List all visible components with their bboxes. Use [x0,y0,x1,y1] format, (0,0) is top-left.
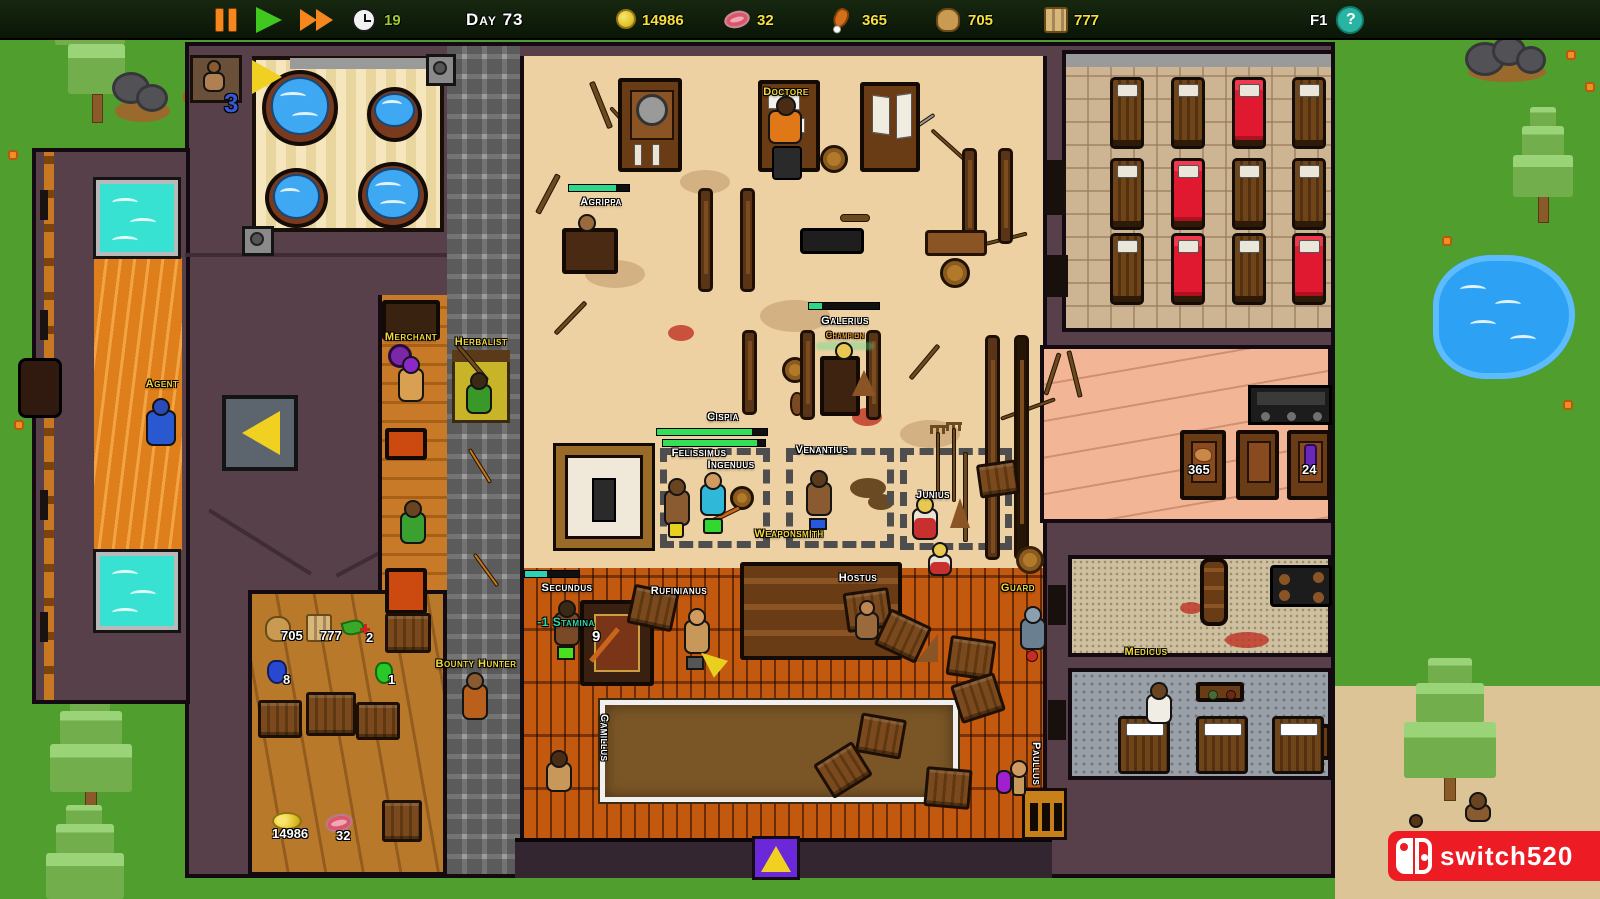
poultry-value: 365 [862,12,887,29]
guard-character[interactable] [1020,606,1046,664]
bed[interactable] [1232,77,1266,149]
barrel-table[interactable] [1200,558,1228,626]
tree-trunk [92,94,103,123]
pool-wave [130,218,156,227]
paullus-label: Paullus [1030,742,1042,785]
crate [923,766,972,810]
medicine-shelf[interactable] [1196,682,1244,702]
game-screen: 3 [0,0,1600,899]
wall-window [40,190,48,220]
herbalist-character[interactable] [466,372,494,420]
rufinianus-label: Rufinianus [651,585,708,597]
pool-wave [280,92,306,101]
shop-table[interactable] [385,428,427,460]
bed[interactable] [1110,233,1144,305]
health-bar [662,439,766,447]
bed[interactable] [1232,158,1266,230]
station-post [800,330,815,420]
sparring-post[interactable] [740,188,755,292]
herb-count: 2 [366,630,373,645]
flower-icon [1563,400,1573,410]
pause-button[interactable] [215,8,241,34]
pond-wave [1510,335,1536,344]
top-bar: 19 Day 73 14986 32 365 705 777 F1 ? [0,0,1600,40]
armor-rack[interactable] [860,82,920,172]
bed[interactable] [1110,158,1144,230]
tree-icon [1522,126,1564,156]
bedroom-door[interactable] [1046,160,1066,215]
bath-top-rail [290,58,430,69]
blood-stain [1225,632,1269,648]
weaponsmith-label: Weaponsmith [754,528,823,540]
pool-wave [292,112,318,121]
bed[interactable] [1171,233,1205,305]
fast-forward-button[interactable] [300,9,336,33]
galerius-character[interactable] [830,342,858,372]
gold-value: 14986 [642,12,684,29]
wall-window [40,612,48,642]
felissimus-character[interactable] [664,478,692,538]
pond-wave [1470,320,1496,329]
rack-post-tall[interactable] [1014,335,1029,560]
secundus-label: Secundus [542,582,593,594]
switch-logo-icon [1415,838,1432,874]
bench-black[interactable] [800,228,864,254]
blood-stain [668,325,694,341]
bed[interactable] [1232,233,1266,305]
tree-icon [56,824,114,854]
blue-potion-count: 8 [283,672,290,687]
pool-wave [382,100,402,109]
round-basin [1016,546,1044,574]
wood-value: 777 [1074,12,1099,29]
cispia-label: Cispia [707,411,739,423]
wood-planks-icon [1044,7,1068,33]
herbalist-label: Herbalist [455,336,507,348]
agent-label: Agent [146,378,179,390]
gold-count: 14986 [272,826,308,841]
bedroom-door[interactable] [1046,255,1068,297]
grain-count: 705 [281,628,303,643]
infirmary-door[interactable] [1048,700,1066,740]
crate [976,459,1020,498]
tree-trunk [1444,777,1456,801]
health-bar [568,184,630,192]
ingenuus-character[interactable] [700,472,728,536]
play-button[interactable] [256,7,284,35]
poultry-icon [831,6,852,30]
tree-icon [50,744,132,792]
pool-wave [112,570,138,579]
exit-arrow-left-icon [242,411,280,455]
flower-icon [1585,82,1595,92]
meat-value: 32 [757,12,774,29]
weapon-pitchfork [952,428,956,502]
kitchen-potion-count: 24 [1302,462,1316,477]
clock-icon [352,8,376,32]
entrance-arrow-up-icon [761,846,791,872]
kitchen-counter-empty[interactable] [1236,430,1279,500]
venantius-label: Venantius [796,444,849,456]
round-shield [940,258,970,288]
grain-value: 705 [968,12,993,29]
ingenuus-label: Ingenuus [707,459,754,471]
butchery-door[interactable] [1048,585,1066,625]
wall-window [40,490,48,520]
sparring-post[interactable] [998,148,1013,244]
crate [855,712,907,759]
crate [385,613,431,653]
bath-pool-round[interactable] [358,162,428,229]
bounty-hunter-character[interactable] [462,672,488,730]
tree-trunk [1538,196,1549,223]
stove[interactable] [1248,385,1332,425]
sparring-post[interactable] [698,188,713,292]
tree-icon [66,805,102,825]
crate [258,700,302,738]
tree-icon [1404,722,1496,778]
pond-wave [1460,285,1486,294]
kitchen-poultry-count: 365 [1188,462,1210,477]
tree-icon [1416,683,1484,723]
pond [1433,255,1575,379]
rack-post-tall[interactable] [985,335,1000,560]
question-icon: ? [1346,11,1356,29]
doctore-label: Doctore [763,86,809,98]
tree-icon [1428,658,1472,684]
meat-count: 32 [336,828,350,843]
health-bar [656,428,768,436]
shield-fighter-character[interactable] [855,600,879,652]
rack-post[interactable] [742,330,757,415]
galerius-label: Galerius [821,315,869,327]
weapon-lizard [840,214,870,222]
butcher-cart[interactable] [1270,565,1332,607]
bed[interactable] [1292,77,1326,149]
medicus-label: Medicus [1125,646,1168,658]
left-wing-door[interactable] [18,358,62,418]
tree-icon [1513,155,1573,197]
tree-icon [46,853,124,899]
pool-wave [280,188,300,197]
pool-wave [112,198,138,207]
flower-icon [8,150,18,160]
villager-character[interactable] [1465,792,1491,826]
watermark-text: switch520 [1440,841,1573,872]
bath-pool-round[interactable] [265,168,328,228]
bath-pool-round[interactable] [367,87,422,142]
pool-wave [375,182,401,191]
bell-icon[interactable] [852,370,876,396]
customer-character[interactable] [400,500,428,552]
camillus-label: Camillus [598,714,610,762]
wall-window [40,310,48,340]
flower-icon [1442,236,1452,246]
medicus-character[interactable] [1146,682,1174,740]
bed[interactable] [1171,77,1205,149]
shop-table[interactable] [385,568,427,614]
watermark-banner: switch520 [1388,831,1600,881]
bedroom [1062,50,1335,332]
portcullis-gate[interactable] [1022,788,1067,840]
hostus-label: Hostus [839,572,878,584]
rock-icon [1516,46,1546,74]
round-shield [820,145,848,173]
anvil [592,478,616,522]
bed[interactable] [1171,158,1205,230]
flower-icon [14,420,24,430]
flower-icon [1566,50,1576,60]
crate [356,702,400,740]
stone-path [447,46,520,874]
day-label: Day 73 [466,10,523,30]
wood-count: 777 [320,628,342,643]
merchant-character[interactable] [398,356,426,410]
bed[interactable] [1292,233,1326,305]
bed[interactable] [1110,77,1144,149]
clock-value: 19 [384,12,401,29]
infirmary-bed[interactable] [1272,716,1324,774]
stamina-bar [524,570,580,578]
pool-wave [130,590,156,599]
venantius-character[interactable] [806,470,832,530]
training-cone [950,498,970,528]
agrippa-character[interactable] [572,214,602,244]
merchant-label: Merchant [385,331,437,343]
spin-pole [963,452,968,542]
crate [382,800,422,842]
pond-wave [1495,300,1521,309]
pillar-ring [433,61,447,75]
queued-character[interactable] [202,60,226,96]
camillus-character[interactable] [546,750,572,802]
grindstone-station[interactable] [618,78,682,172]
infirmary-bed[interactable] [1196,716,1248,774]
grain-sack-icon [936,8,960,32]
bounty-hunter-label: Bounty Hunter [436,658,517,670]
bench-brown[interactable] [925,230,987,256]
bed[interactable] [1292,158,1326,230]
fighting-pit[interactable] [600,700,958,802]
green-potion-count: 1 [388,672,395,687]
felissimus-label: Felissimus [672,447,727,459]
crate [306,692,356,736]
champion-label: Champion [826,329,865,341]
doctore-character[interactable] [768,96,802,154]
paullus-character[interactable] [996,756,1024,802]
blood-stain [1180,602,1202,614]
stamina-popup-value: 9 [592,628,600,645]
help-key-label: F1 [1310,12,1328,29]
bath-queue-count: 3 [224,88,238,119]
junius-label: Junius [916,489,950,501]
secundus-character[interactable] [554,600,580,662]
rock-icon [136,84,168,112]
agrippa-label: Agrippa [580,196,622,208]
hostus-character[interactable] [928,542,952,588]
bath-door-marker-icon[interactable] [252,60,282,94]
health-bar [808,302,880,310]
bedroom-top-rail [1066,54,1331,67]
help-button[interactable]: ? [1336,6,1364,34]
agent-character[interactable] [146,398,176,454]
meat-icon [722,8,751,31]
pool-wave [112,236,138,245]
guard-label: Guard [1001,582,1035,594]
pool-wave [380,200,406,209]
tree-icon [60,711,122,745]
wall-seam [185,253,447,257]
gold-icon [616,9,636,29]
tree-icon [1530,107,1556,127]
switch-logo-icon [1396,838,1413,874]
stamina-popup: -1 Stamina [537,616,595,628]
pool-wave [112,608,138,617]
pillar-ring [250,232,264,246]
